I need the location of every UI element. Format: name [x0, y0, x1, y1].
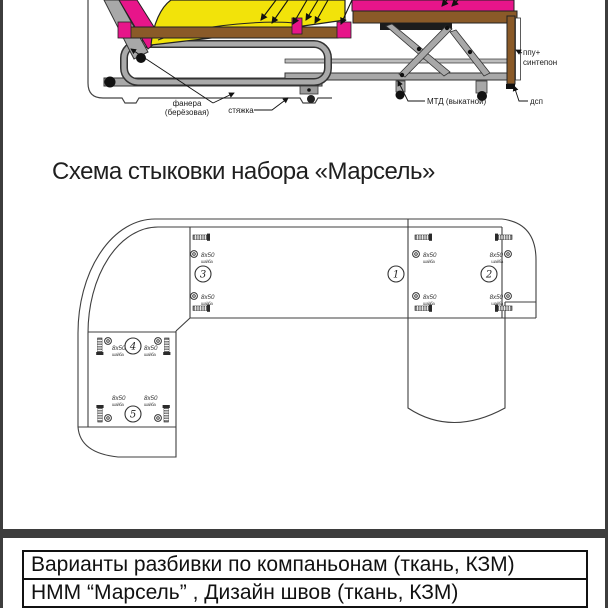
washer-icon — [155, 338, 162, 345]
bolt-icon — [163, 405, 170, 422]
seat-plank — [122, 27, 338, 38]
frame-wheel — [307, 95, 315, 103]
footer-row-variants: Варианты разбивки по компаньонам (ткань,… — [24, 552, 586, 580]
bolt-icon — [193, 234, 210, 241]
junction-2: 2 8x50 шайба 8x50 шайба — [481, 234, 512, 312]
dsp-board — [507, 16, 515, 84]
washer-icon — [413, 251, 420, 258]
bolt-icon — [96, 405, 103, 422]
svg-text:4: 4 — [129, 342, 136, 353]
label-tie: стяжка — [228, 98, 288, 115]
bed-mattress — [352, 0, 514, 11]
washer-icon — [105, 338, 112, 345]
bolt-icon — [96, 338, 103, 355]
svg-text:шайба: шайба — [491, 259, 504, 264]
svg-text:ппу+: ппу+ — [523, 48, 541, 57]
ppu-strip — [516, 18, 521, 80]
junction-1: 1 8x50 шайба 8x50 шайба — [388, 234, 437, 312]
washer-icon — [505, 251, 512, 258]
svg-text:фанера: фанера — [173, 99, 202, 108]
junction-4: 8x50 шайба 4 8x50 шайба — [96, 338, 170, 357]
junction-5: 8x50 шайба 5 8x50 шайба — [96, 395, 169, 422]
svg-text:8x50: 8x50 — [112, 345, 126, 352]
page-separator-bar — [0, 529, 608, 538]
plank-pink-left — [118, 22, 131, 38]
svg-text:синтепон: синтепон — [523, 58, 557, 67]
svg-text:8x50: 8x50 — [112, 395, 126, 402]
bolt-icon — [495, 305, 512, 312]
footer-table: Варианты разбивки по компаньонам (ткань,… — [22, 550, 588, 608]
svg-text:шайба: шайба — [144, 402, 157, 407]
bolt-icon — [495, 234, 512, 241]
washer-icon — [191, 251, 198, 258]
svg-text:8x50: 8x50 — [144, 395, 158, 402]
washer-icon — [191, 293, 198, 300]
plank-pink-mid — [292, 18, 302, 34]
label-mtd: МТД (выкатной) — [398, 81, 487, 106]
frame-roller — [105, 77, 116, 88]
footer-row-design: НММ “Марсель” , Дизайн швов (ткань, КЗМ) — [24, 580, 586, 606]
plan-outline — [78, 219, 536, 457]
svg-text:5: 5 — [130, 410, 136, 421]
svg-text:8x50: 8x50 — [423, 252, 437, 259]
scissor-pivot — [445, 26, 449, 30]
svg-text:8x50: 8x50 — [490, 252, 504, 259]
svg-text:шайба: шайба — [201, 259, 214, 264]
scissor-pivot — [417, 47, 421, 51]
washer-icon — [413, 293, 420, 300]
assembly-floor-plan: 8x50 шайба 3 8x50 шайба 1 8x50 шайба 8x5… — [0, 210, 608, 465]
svg-text:шайба: шайба — [144, 352, 157, 357]
bolt-icon — [415, 234, 432, 241]
svg-text:2: 2 — [485, 270, 492, 281]
svg-text:1: 1 — [393, 270, 399, 281]
tie-bolt — [307, 88, 311, 92]
washer-icon — [155, 415, 162, 422]
bolt-icon — [163, 338, 170, 355]
svg-text:МТД (выкатной): МТД (выкатной) — [427, 97, 487, 106]
page-title: Схема стыковки набора «Марсель» — [52, 158, 435, 186]
bed-platform — [353, 11, 517, 23]
svg-text:3: 3 — [200, 270, 206, 281]
junction-3: 8x50 шайба 3 8x50 шайба — [191, 234, 215, 312]
svg-text:8x50: 8x50 — [201, 294, 215, 301]
page-sheet-footer: Варианты разбивки по компаньонам (ткань,… — [0, 538, 608, 608]
sofa-cross-section-drawing: фанера (берёзовая) стяжка МТД (выкатной)… — [0, 0, 608, 125]
plank-pink-right — [337, 22, 351, 38]
svg-text:шайба: шайба — [423, 259, 436, 264]
label-ppu: ппу+ синтепон — [516, 48, 557, 67]
svg-text:стяжка: стяжка — [228, 106, 254, 115]
washer-icon — [105, 415, 112, 422]
svg-text:(берёзовая): (берёзовая) — [165, 108, 209, 117]
washer-icon — [505, 293, 512, 300]
svg-text:8x50: 8x50 — [490, 294, 504, 301]
svg-text:дсп: дсп — [530, 97, 543, 106]
svg-text:шайба: шайба — [112, 352, 125, 357]
svg-text:8x50: 8x50 — [144, 345, 158, 352]
svg-text:8x50: 8x50 — [201, 252, 215, 259]
svg-text:8x50: 8x50 — [423, 294, 437, 301]
scissor-pivot — [400, 73, 404, 77]
label-dsp: дсп — [514, 86, 543, 106]
dsp-board-tip — [506, 84, 515, 89]
svg-text:шайба: шайба — [112, 402, 125, 407]
scissor-pivot — [468, 50, 472, 54]
scanned-furniture-document: { "title": "Схема стыковки набора «Марсе… — [0, 0, 608, 608]
